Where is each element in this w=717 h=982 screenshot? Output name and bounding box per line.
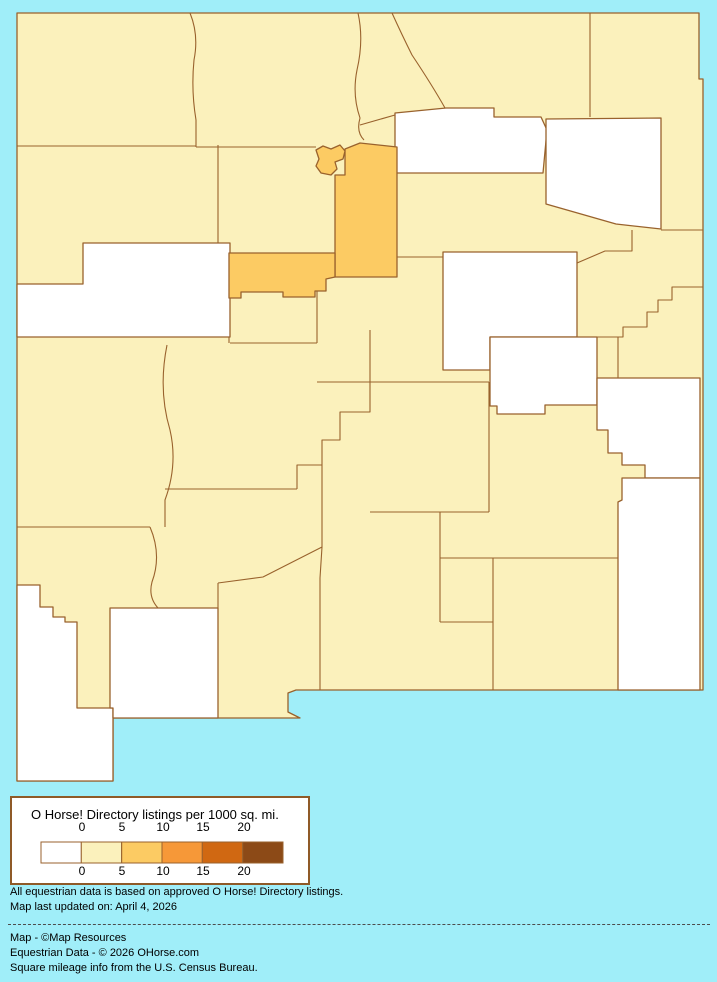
legend-tick-label: 5 — [119, 820, 126, 834]
page: O Horse! Directory listings per 1000 sq.… — [0, 0, 717, 982]
legend-tick-label: 15 — [196, 820, 209, 834]
legend-tick-label: 15 — [196, 864, 209, 878]
legend: O Horse! Directory listings per 1000 sq.… — [10, 796, 310, 885]
legend-tick-label: 20 — [237, 864, 250, 878]
legend-swatch-5-10 — [122, 842, 162, 863]
legend-tick-label: 10 — [156, 820, 169, 834]
legend-tick-label: 5 — [119, 864, 126, 878]
legend-swatch-0-5 — [81, 842, 121, 863]
legend-swatch-20-plus — [243, 842, 283, 863]
footer-note-last-updated: Map last updated on: April 4, 2026 — [10, 901, 177, 913]
legend-color-ramp — [40, 841, 286, 865]
footer-credit-equestrian-data: Equestrian Data - © 2026 OHorse.com — [10, 947, 199, 959]
legend-tick-label: 20 — [237, 820, 250, 834]
legend-tick-label: 0 — [79, 864, 86, 878]
county-mora — [395, 108, 547, 173]
county-luna — [110, 608, 218, 718]
legend-tick-label: 10 — [156, 864, 169, 878]
legend-swatch-15-20 — [202, 842, 242, 863]
footer-credit-map: Map - ©Map Resources — [10, 932, 126, 944]
dashed-separator — [8, 924, 710, 925]
legend-tick-label: 0 — [79, 820, 86, 834]
footer-note-data-source: All equestrian data is based on approved… — [10, 886, 343, 898]
footer-credit-census: Square mileage info from the U.S. Census… — [10, 962, 258, 974]
county-de-baca — [490, 337, 597, 414]
legend-swatch-10-15 — [162, 842, 202, 863]
county-lea — [618, 478, 700, 690]
county-bernalillo — [229, 253, 335, 298]
legend-swatch-0 — [41, 842, 81, 863]
